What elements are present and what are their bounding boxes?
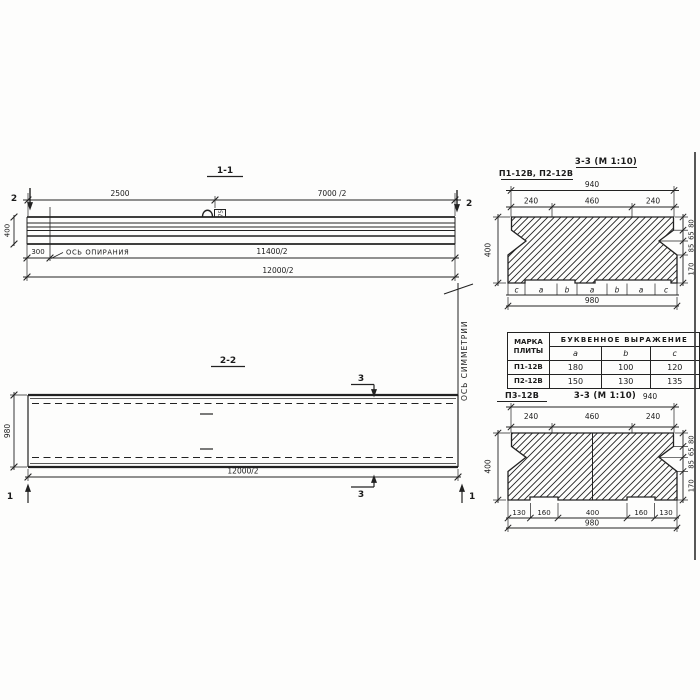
dim-width-980-label: 980: [3, 424, 12, 439]
cross-section-top-body: [508, 217, 677, 283]
support-axis-label: ОСЬ ОПИРАНИЯ: [66, 249, 129, 257]
table-col-b: b: [602, 347, 651, 361]
cross-section-top-title: 3-3 (М 1:10) П1-12В, П2-12В: [499, 157, 637, 180]
slab-plan: [28, 395, 458, 467]
dim-chain-11400: 300 ОСЬ ОПИРАНИЯ 11400/2: [23, 244, 459, 281]
dim-2500-label: 2500: [110, 189, 129, 198]
loop-tag-label: 75: [219, 210, 225, 217]
row-p2-a: 150: [549, 375, 601, 389]
cross-section-bottom-mark-label: П3-12В: [505, 391, 539, 400]
cut-marker-3-top: 3: [351, 374, 376, 396]
dim-460-label: 460: [585, 197, 600, 206]
beam-side-view: [27, 217, 455, 244]
cut-marker-1-left: 1: [7, 485, 30, 503]
cross-section-bottom-drawing: П3-12В 3-3 (М 1:10) 940 240 460 240: [480, 388, 698, 555]
dim-bottom-980-bottom: 980: [505, 519, 680, 533]
cut-marker-2-left-label: 2: [11, 194, 17, 204]
dim-left-400-bottom: 400: [484, 430, 511, 503]
cut-marker-1-left-label: 1: [7, 492, 13, 502]
plate-table: МАРКА ПЛИТЫ БУКВЕННОЕ ВЫРАЖЕНИЕ a b c П1…: [507, 332, 700, 389]
dim-left-400-top: 400: [484, 214, 511, 286]
cross-section-bottom-body: [508, 433, 677, 500]
cut-marker-2-right: 2: [455, 190, 473, 211]
dim-top-240-460-240-bottom: 240 460 240: [506, 403, 679, 433]
cut-marker-2-right-label: 2: [466, 199, 472, 209]
cross-section-top-title-text: 3-3 (М 1:10): [575, 157, 637, 167]
dim-7000-label: 7000 /2: [318, 189, 347, 198]
dim-240l-label: 240: [524, 197, 539, 206]
cut-marker-3-bottom-label: 3: [358, 490, 364, 500]
dim-160l-label: 160: [537, 509, 550, 517]
row-p1-a: 180: [549, 361, 601, 375]
dim-400c-label: 400: [586, 509, 599, 517]
table-col-c: c: [650, 347, 699, 361]
sheet-border-line: [694, 152, 696, 560]
dim-width-980: 980: [3, 392, 27, 471]
table-header-mark: МАРКА ПЛИТЫ: [508, 333, 550, 361]
table-row: П1-12В 180 100 120: [508, 361, 700, 375]
dim-460-bottom-label: 460: [585, 412, 600, 421]
blueprint-sheet: 1-1 2500 7000 /2 2 2: [0, 0, 700, 700]
cut-marker-3-bottom: 3: [351, 476, 376, 500]
row-p1-b: 100: [602, 361, 651, 375]
lifting-loop: 75: [203, 210, 226, 218]
row-p2-mark: П2-12В: [508, 375, 550, 389]
letter-a-3: a: [639, 286, 644, 295]
dim-980-bottom-label: 980: [585, 519, 600, 528]
cross-section-top-drawing: 3-3 (М 1:10) П1-12В, П2-12В 940 240 460 …: [480, 155, 698, 327]
dim-130r-label: 130: [659, 509, 672, 517]
section-2-2-title-text: 2-2: [220, 356, 236, 366]
table-header-mark-line2: ПЛИТЫ: [510, 347, 547, 355]
cut-marker-1-right-label: 1: [469, 492, 475, 502]
dim-130l-label: 130: [512, 509, 525, 517]
dim-240l-bottom-label: 240: [524, 412, 539, 421]
letter-a-1: a: [539, 286, 544, 295]
row-p2-b: 130: [602, 375, 651, 389]
dim-top-940-bottom: [506, 404, 679, 410]
cut-marker-1-right: 1: [460, 485, 476, 503]
cross-section-bottom-title-text: 3-3 (М 1:10): [574, 391, 636, 401]
table-header-row: МАРКА ПЛИТЫ БУКВЕННОЕ ВЫРАЖЕНИЕ: [508, 333, 700, 347]
dim-height-400: 400: [4, 214, 18, 248]
table-header-expr: БУКВЕННОЕ ВЫРАЖЕНИЕ: [549, 333, 699, 347]
dim-length-12000-label: 12000/2: [227, 467, 258, 476]
dim-940-bottom-label: 940: [643, 392, 658, 401]
cross-section-bottom-title: П3-12В 3-3 (М 1:10) 940: [497, 391, 657, 402]
dim-chain-top: 2500 7000 /2: [23, 189, 461, 216]
dim-160r-label: 160: [634, 509, 647, 517]
dim-240r-bottom-label: 240: [646, 412, 661, 421]
section-1-1-title: 1-1: [207, 166, 243, 177]
section-1-1-drawing: 1-1 2500 7000 /2 2 2: [0, 160, 480, 298]
dim-300-label: 300: [31, 248, 44, 256]
dim-top-940: 940: [506, 180, 679, 194]
dim-length-12000: 12000/2: [25, 467, 462, 482]
dim-980-top-label: 980: [585, 296, 600, 305]
row-p2-c: 135: [650, 375, 699, 389]
letter-band: c a b a b a c: [506, 284, 679, 296]
table-header-mark-line1: МАРКА: [510, 338, 547, 346]
dim-240r-label: 240: [646, 197, 661, 206]
section-2-2-drawing: 2-2 3 980: [0, 350, 480, 510]
cut-marker-3-top-label: 3: [358, 374, 364, 384]
letter-a-2: a: [590, 286, 595, 295]
letter-c-2: c: [664, 286, 669, 295]
dim-400-top-label: 400: [484, 243, 493, 258]
table-col-a: a: [549, 347, 601, 361]
row-p1-mark: П1-12В: [508, 361, 550, 375]
dim-400-bottom-label: 400: [484, 459, 493, 474]
cross-section-top-mark-label: П1-12В, П2-12В: [499, 169, 573, 178]
dim-11400-label: 11400/2: [256, 247, 287, 256]
dim-bottom-980-top: 980: [505, 296, 680, 310]
row-p1-c: 120: [650, 361, 699, 375]
dim-height-400-label: 400: [4, 224, 12, 237]
section-2-2-title: 2-2: [211, 356, 245, 367]
letter-b-2: b: [615, 286, 620, 295]
table-row: П2-12В 150 130 135: [508, 375, 700, 389]
dim-chain-12000: 12000/2: [23, 266, 459, 280]
letter-c-1: c: [514, 286, 519, 295]
letter-b-1: b: [565, 286, 570, 295]
dim-940-label: 940: [585, 180, 600, 189]
section-1-1-title-text: 1-1: [217, 166, 233, 176]
dim-12000-label: 12000/2: [262, 266, 293, 275]
